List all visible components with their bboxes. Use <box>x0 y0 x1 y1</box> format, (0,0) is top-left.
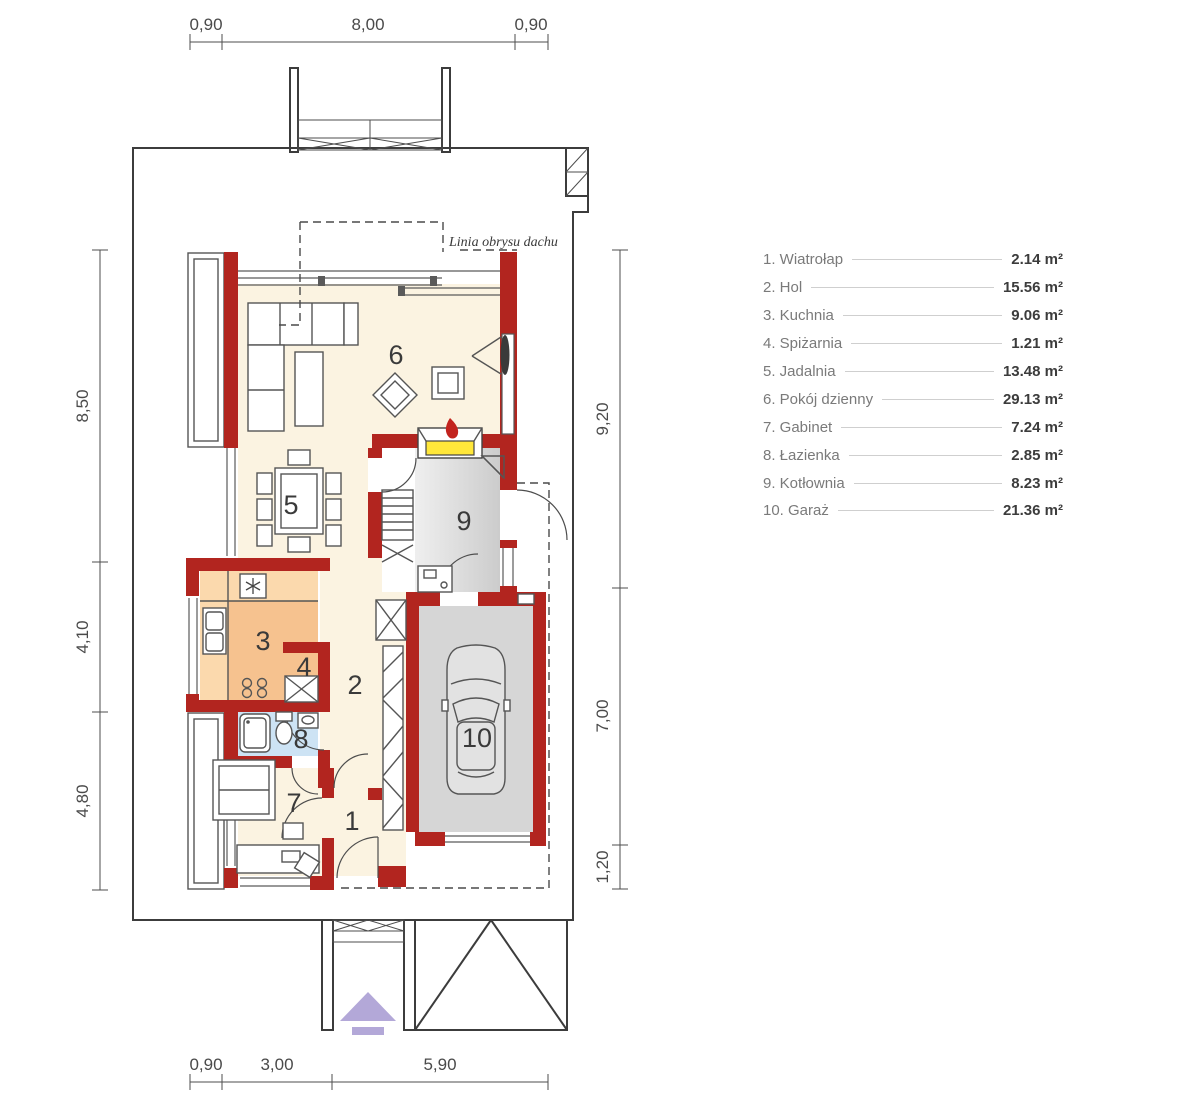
room-label-10: 10 <box>462 723 492 753</box>
legend-row: 10. Garaż 21.36 m² <box>763 497 1063 525</box>
terrace-left-top <box>188 253 224 447</box>
legend-row: 8. Łazienka 2.85 m² <box>763 441 1063 469</box>
room-legend: 1. Wiatrołap 2.14 m² 2. Hol 15.56 m² 3. … <box>763 246 1063 525</box>
legend-row: 9. Kotłownia 8.23 m² <box>763 469 1063 497</box>
room-label-9: 9 <box>456 506 471 536</box>
legend-room-name: 2. Hol <box>763 279 802 296</box>
dim-top-3: 0,90 <box>514 15 547 34</box>
legend-room-area: 8.23 m² <box>1011 475 1063 492</box>
dim-top-1: 0,90 <box>189 15 222 34</box>
dimension-bottom: 0,90 3,00 5,90 <box>189 1055 548 1090</box>
legend-room-name: 1. Wiatrołap <box>763 251 843 268</box>
side-table <box>283 823 303 839</box>
legend-room-name: 5. Jadalnia <box>763 363 836 380</box>
dim-right-3: 1,20 <box>593 850 612 883</box>
legend-row: 2. Hol 15.56 m² <box>763 274 1063 302</box>
leader-line <box>841 427 1002 428</box>
wardrobe <box>383 646 403 830</box>
room-label-1: 1 <box>344 806 359 836</box>
legend-room-area: 1.21 m² <box>1011 335 1063 352</box>
legend-row: 3. Kuchnia 9.06 m² <box>763 302 1063 330</box>
car <box>442 645 510 794</box>
dim-bottom-3: 5,90 <box>423 1055 456 1074</box>
legend-room-area: 15.56 m² <box>1003 279 1063 296</box>
shaft <box>376 600 406 640</box>
dimension-right: 9,20 7,00 1,20 <box>593 250 628 889</box>
armchair <box>432 367 464 399</box>
room-label-5: 5 <box>283 490 298 520</box>
dimension-left: 8,50 4,10 4,80 <box>73 250 108 890</box>
dim-left-3: 4,80 <box>73 784 92 817</box>
legend-row: 5. Jadalnia 13.48 m² <box>763 358 1063 386</box>
legend-room-name: 10. Garaż <box>763 502 829 519</box>
toilet <box>276 712 292 721</box>
leader-line <box>849 455 1003 456</box>
driveway-roof <box>415 920 567 1030</box>
dim-left-2: 4,10 <box>73 620 92 653</box>
room-label-6: 6 <box>388 340 403 370</box>
legend-row: 1. Wiatrołap 2.14 m² <box>763 246 1063 274</box>
legend-room-area: 29.13 m² <box>1003 391 1063 408</box>
leader-line <box>852 259 1002 260</box>
dim-bottom-2: 3,00 <box>260 1055 293 1074</box>
dormer-top <box>290 68 450 152</box>
legend-row: 7. Gabinet 7.24 m² <box>763 413 1063 441</box>
chimney <box>566 148 588 196</box>
dim-top-2: 8,00 <box>351 15 384 34</box>
roof-outline-label: Linia obrysu dachu <box>448 235 558 250</box>
legend-room-area: 2.85 m² <box>1011 447 1063 464</box>
room-label-7: 7 <box>286 788 301 818</box>
dim-right-1: 9,20 <box>593 402 612 435</box>
floor-plan-drawing: 0,90 8,00 0,90 0,90 3,00 5,90 8,50 4,10 … <box>0 0 700 1100</box>
leader-line <box>838 510 994 511</box>
legend-room-area: 2.14 m² <box>1011 251 1063 268</box>
dim-left-1: 8,50 <box>73 389 92 422</box>
room-label-2: 2 <box>347 670 362 700</box>
legend-room-name: 3. Kuchnia <box>763 307 834 324</box>
dim-bottom-1: 0,90 <box>189 1055 222 1074</box>
legend-room-area: 21.36 m² <box>1003 502 1063 519</box>
room-label-4: 4 <box>296 652 311 682</box>
leader-line <box>811 287 994 288</box>
leader-line <box>882 399 994 400</box>
entrance-arrow-icon <box>340 992 396 1035</box>
legend-row: 6. Pokój dzienny 29.13 m² <box>763 385 1063 413</box>
leader-line <box>851 343 1002 344</box>
leader-line <box>845 371 994 372</box>
dimension-top: 0,90 8,00 0,90 <box>189 15 548 50</box>
legend-room-area: 7.24 m² <box>1011 419 1063 436</box>
legend-room-name: 7. Gabinet <box>763 419 832 436</box>
leader-line <box>843 315 1002 316</box>
dim-right-2: 7,00 <box>593 699 612 732</box>
legend-room-name: 8. Łazienka <box>763 447 840 464</box>
legend-room-name: 4. Spiżarnia <box>763 335 842 352</box>
legend-row: 4. Spiżarnia 1.21 m² <box>763 330 1063 358</box>
legend-room-area: 13.48 m² <box>1003 363 1063 380</box>
leader-line <box>854 483 1003 484</box>
legend-room-area: 9.06 m² <box>1011 307 1063 324</box>
legend-room-name: 6. Pokój dzienny <box>763 391 873 408</box>
room-label-3: 3 <box>255 626 270 656</box>
room-label-8: 8 <box>293 724 308 754</box>
floor-plan-page: 0,90 8,00 0,90 0,90 3,00 5,90 8,50 4,10 … <box>0 0 1200 1100</box>
legend-room-name: 9. Kotłownia <box>763 475 845 492</box>
